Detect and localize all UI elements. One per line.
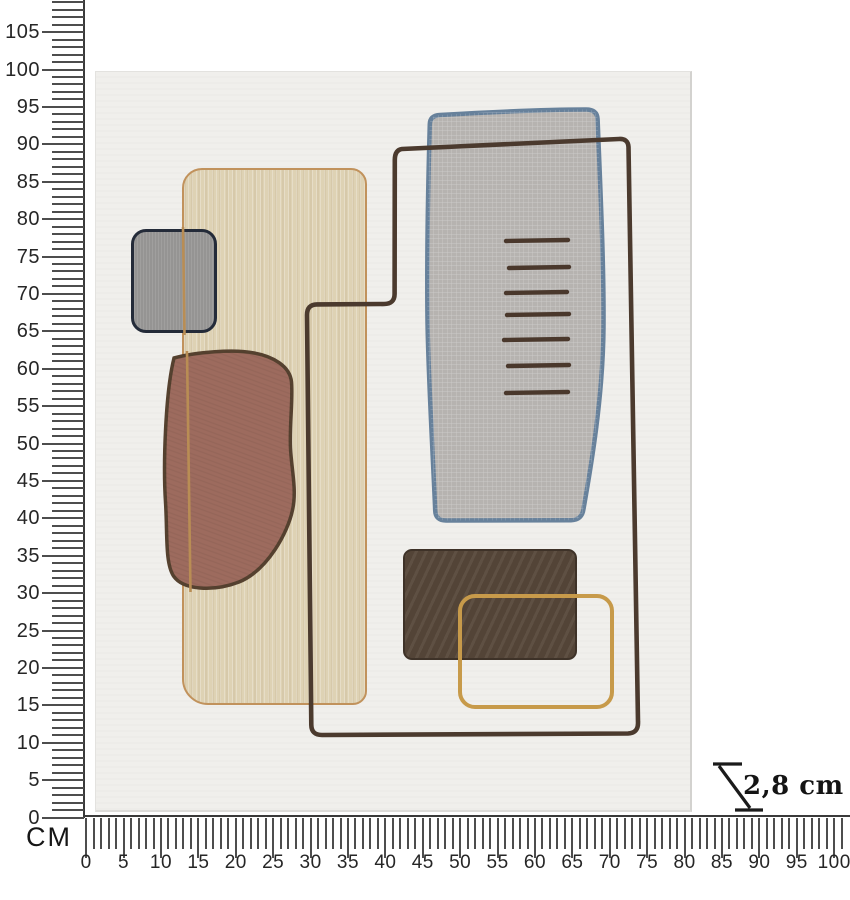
ruler-tick [52, 600, 84, 602]
ruler-tick [803, 818, 805, 849]
ruler-tick [766, 818, 768, 849]
ruler-tick [115, 818, 117, 849]
ruler-tick [601, 818, 603, 849]
ruler-tick [250, 818, 252, 849]
ruler-tick [52, 644, 84, 646]
ruler-tick [52, 794, 84, 796]
v-ruler-label: 75 [0, 247, 40, 267]
ruler-tick [52, 308, 84, 310]
ruler-tick [52, 764, 84, 766]
ruler-tick [594, 818, 596, 849]
ruler-tick [42, 704, 84, 706]
ruler-tick [377, 818, 379, 849]
ruler-tick [52, 24, 84, 26]
ruler-tick [52, 674, 84, 676]
ruler-tick [42, 555, 84, 557]
v-ruler-label: 85 [0, 172, 40, 192]
ruler-tick [52, 121, 84, 123]
ruler-tick [399, 818, 401, 849]
ruler-tick [52, 166, 84, 168]
ruler-tick [42, 69, 84, 71]
ruler-tick [52, 450, 84, 452]
ruler-tick [42, 256, 84, 258]
ruler-tick [52, 472, 84, 474]
ruler-tick [280, 818, 282, 849]
ruler-tick [504, 818, 506, 849]
ruler-tick [265, 818, 267, 849]
brown-dashes [504, 240, 569, 393]
v-ruler-label: 20 [0, 658, 40, 678]
ruler-tick [728, 818, 730, 849]
ruler-tick [52, 285, 84, 287]
ruler-tick [639, 818, 641, 849]
ruler-tick [340, 818, 342, 849]
ruler-tick [52, 98, 84, 100]
ruler-tick [302, 818, 304, 849]
ruler-tick [42, 106, 84, 108]
ruler-tick [52, 652, 84, 654]
ruler-tick [52, 1, 84, 3]
ruler-tick [52, 487, 84, 489]
ruler-tick [489, 818, 491, 849]
ruler-tick [52, 241, 84, 243]
v-ruler-label: 35 [0, 546, 40, 566]
ruler-tick [52, 802, 84, 804]
ruler-tick [52, 375, 84, 377]
ruler-tick [736, 818, 738, 849]
ruler-tick [145, 818, 147, 849]
ruler-tick [52, 809, 84, 811]
ruler-tick [52, 712, 84, 714]
product-dimension-image: 1051009590858075706560555045403530252015… [0, 0, 850, 900]
ruler-tick [42, 517, 84, 519]
ruler-tick [42, 742, 84, 744]
ruler-tick [52, 562, 84, 564]
ruler-tick [52, 16, 84, 18]
ruler-tick [52, 502, 84, 504]
v-ruler-label: 105 [0, 22, 40, 42]
ruler-tick [52, 315, 84, 317]
ruler-tick [52, 196, 84, 198]
ruler-tick [52, 734, 84, 736]
tan-line-over-square [183, 227, 185, 335]
ruler-tick [42, 443, 84, 445]
ruler-tick [564, 818, 566, 849]
v-ruler-label: 60 [0, 359, 40, 379]
ruler-tick [52, 263, 84, 265]
ruler-tick [212, 818, 214, 849]
ruler-tick [52, 749, 84, 751]
ruler-tick [52, 338, 84, 340]
ruler-tick [52, 270, 84, 272]
ruler-tick [52, 158, 84, 160]
ruler-tick [616, 818, 618, 849]
ruler-tick [42, 592, 84, 594]
v-ruler-label: 10 [0, 733, 40, 753]
ruler-tick [242, 818, 244, 849]
ruler-tick [42, 630, 84, 632]
ruler-tick [317, 818, 319, 849]
ruler-tick [52, 323, 84, 325]
v-ruler-label: 90 [0, 134, 40, 154]
v-ruler-label: 80 [0, 209, 40, 229]
ruler-tick [42, 817, 84, 819]
ruler-tick [52, 353, 84, 355]
ruler-tick [52, 457, 84, 459]
ruler-tick [743, 818, 745, 849]
v-ruler-label: 5 [0, 770, 40, 790]
ruler-tick [52, 91, 84, 93]
ruler-tick [332, 818, 334, 849]
ruler-tick [52, 577, 84, 579]
ruler-tick [429, 818, 431, 849]
ruler-tick [519, 818, 521, 849]
ruler-tick [527, 818, 529, 849]
ruler-tick [52, 659, 84, 661]
artwork-line-layer [96, 72, 693, 813]
ruler-tick [541, 818, 543, 849]
h-ruler-label: 100 [812, 853, 850, 873]
ruler-tick [714, 818, 716, 849]
ruler-tick [287, 818, 289, 849]
ruler-tick [818, 818, 820, 849]
ruler-tick [52, 128, 84, 130]
ruler-tick [42, 779, 84, 781]
ruler-tick [42, 218, 84, 220]
ruler-tick [100, 818, 102, 849]
ruler-tick [153, 818, 155, 849]
ruler-tick [52, 203, 84, 205]
ruler-tick [751, 818, 753, 849]
ruler-tick [52, 420, 84, 422]
ruler-tick [52, 76, 84, 78]
ruler-tick [826, 818, 828, 849]
ruler-tick [467, 818, 469, 849]
ruler-tick [42, 368, 84, 370]
ruler-tick [474, 818, 476, 849]
ruler-tick [699, 818, 701, 849]
tan-line-over-blob [187, 351, 191, 592]
ruler-tick [631, 818, 633, 849]
ruler-tick [52, 510, 84, 512]
ruler-tick [773, 818, 775, 849]
ruler-tick [586, 818, 588, 849]
ruler-tick [669, 818, 671, 849]
depth-value: 2,8 cm [743, 771, 844, 801]
ruler-tick [42, 330, 84, 332]
ruler-tick [220, 818, 222, 849]
ruler-tick [661, 818, 663, 849]
ruler-tick [452, 818, 454, 849]
ruler-tick [841, 818, 843, 849]
ruler-tick [190, 818, 192, 849]
ruler-tick [52, 787, 84, 789]
ruler-tick [52, 413, 84, 415]
ruler-tick [52, 61, 84, 63]
ruler-tick [706, 818, 708, 849]
v-ruler-label: 30 [0, 583, 40, 603]
ruler-tick [52, 300, 84, 302]
v-ruler-label: 55 [0, 396, 40, 416]
ruler-tick [52, 188, 84, 190]
ruler-tick [52, 83, 84, 85]
ruler-tick [42, 293, 84, 295]
ruler-tick [52, 9, 84, 11]
ruler-tick [205, 818, 207, 849]
ruler-tick [52, 233, 84, 235]
ruler-tick [52, 383, 84, 385]
ruler-tick [325, 818, 327, 849]
ruler-tick [52, 211, 84, 213]
brown-loop-line [307, 139, 638, 735]
ruler-tick [52, 622, 84, 624]
ruler-tick [362, 818, 364, 849]
ruler-tick [52, 248, 84, 250]
ruler-tick [369, 818, 371, 849]
ruler-tick [52, 615, 84, 617]
v-ruler-label: 25 [0, 621, 40, 641]
v-ruler-label: 40 [0, 508, 40, 528]
ruler-tick [52, 113, 84, 115]
ruler-tick [295, 818, 297, 849]
ruler-tick [52, 46, 84, 48]
ruler-tick [556, 818, 558, 849]
ruler-tick [52, 54, 84, 56]
ruler-tick [42, 181, 84, 183]
ruler-tick [52, 226, 84, 228]
ruler-tick [52, 360, 84, 362]
ruler-tick [52, 136, 84, 138]
ruler-tick [52, 495, 84, 497]
ruler-tick [52, 435, 84, 437]
v-ruler-label: 95 [0, 97, 40, 117]
ruler-tick [52, 398, 84, 400]
v-ruler-label: 50 [0, 434, 40, 454]
ruler-tick [579, 818, 581, 849]
ruler-tick [52, 585, 84, 587]
v-ruler-label: 65 [0, 321, 40, 341]
ruler-tick [52, 757, 84, 759]
ruler-tick [52, 637, 84, 639]
ruler-tick [52, 151, 84, 153]
ruler-tick [130, 818, 132, 849]
ruler-tick [549, 818, 551, 849]
unit-label: CM [26, 822, 72, 853]
ruler-tick [93, 818, 95, 849]
ruler-tick [482, 818, 484, 849]
ruler-tick [52, 682, 84, 684]
ruler-tick [52, 345, 84, 347]
ruler-tick [52, 39, 84, 41]
ruler-tick [676, 818, 678, 849]
ruler-tick [227, 818, 229, 849]
ruler-tick [52, 540, 84, 542]
ruler-tick [52, 278, 84, 280]
ruler-tick [654, 818, 656, 849]
ruler-tick [788, 818, 790, 849]
ruler-tick [42, 31, 84, 33]
ruler-tick [52, 719, 84, 721]
ruler-tick [781, 818, 783, 849]
ruler-tick [52, 570, 84, 572]
ruler-tick [354, 818, 356, 849]
ruler-tick [175, 818, 177, 849]
ruler-tick [52, 547, 84, 549]
ruler-tick [52, 607, 84, 609]
ruler-tick [52, 525, 84, 527]
ruler-tick [437, 818, 439, 849]
ruler-tick [624, 818, 626, 849]
v-ruler-label: 15 [0, 695, 40, 715]
ruler-tick [42, 405, 84, 407]
ruler-tick [108, 818, 110, 849]
v-ruler-label: 100 [0, 60, 40, 80]
ruler-tick [414, 818, 416, 849]
ruler-tick [444, 818, 446, 849]
ruler-tick [52, 727, 84, 729]
ruler-tick [512, 818, 514, 849]
ruler-tick [52, 689, 84, 691]
ruler-tick [138, 818, 140, 849]
ruler-tick [407, 818, 409, 849]
ruler-tick [691, 818, 693, 849]
ruler-tick [52, 465, 84, 467]
ruler-tick [167, 818, 169, 849]
ruler-tick [392, 818, 394, 849]
ruler-tick [52, 173, 84, 175]
ruler-tick [52, 772, 84, 774]
ruler-tick [52, 697, 84, 699]
ruler-tick [52, 532, 84, 534]
ruler-tick [42, 480, 84, 482]
ruler-tick [42, 143, 84, 145]
ruler-tick [42, 667, 84, 669]
ruler-tick [182, 818, 184, 849]
v-ruler-label: 45 [0, 471, 40, 491]
ruler-tick [52, 428, 84, 430]
ruler-tick [257, 818, 259, 849]
artwork-canvas [95, 71, 692, 812]
v-ruler-label: 70 [0, 284, 40, 304]
ruler-tick [811, 818, 813, 849]
ruler-tick [52, 390, 84, 392]
